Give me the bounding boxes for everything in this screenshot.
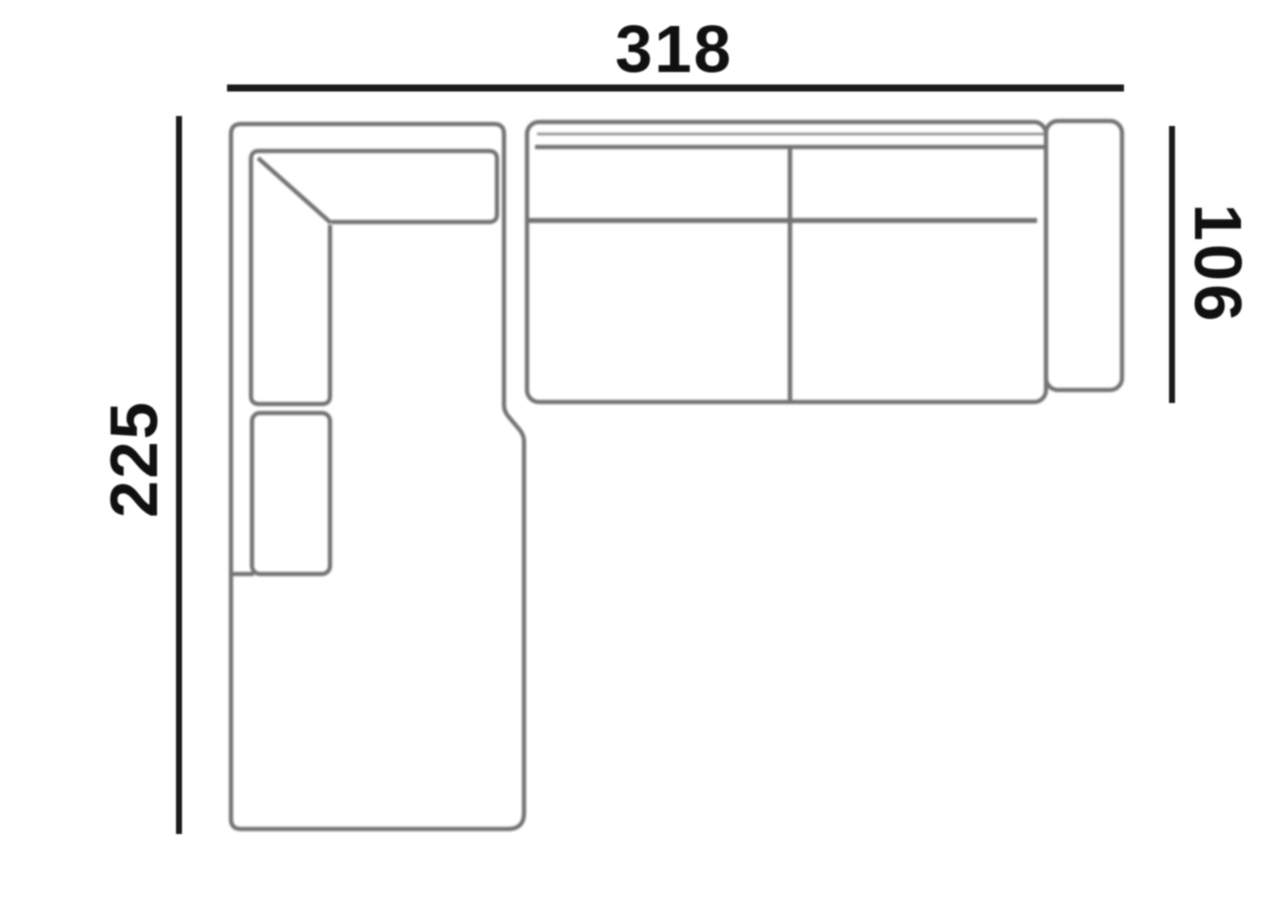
svg-text:318: 318 — [615, 12, 733, 87]
svg-text:106: 106 — [1180, 204, 1255, 325]
svg-text:225: 225 — [97, 400, 172, 518]
